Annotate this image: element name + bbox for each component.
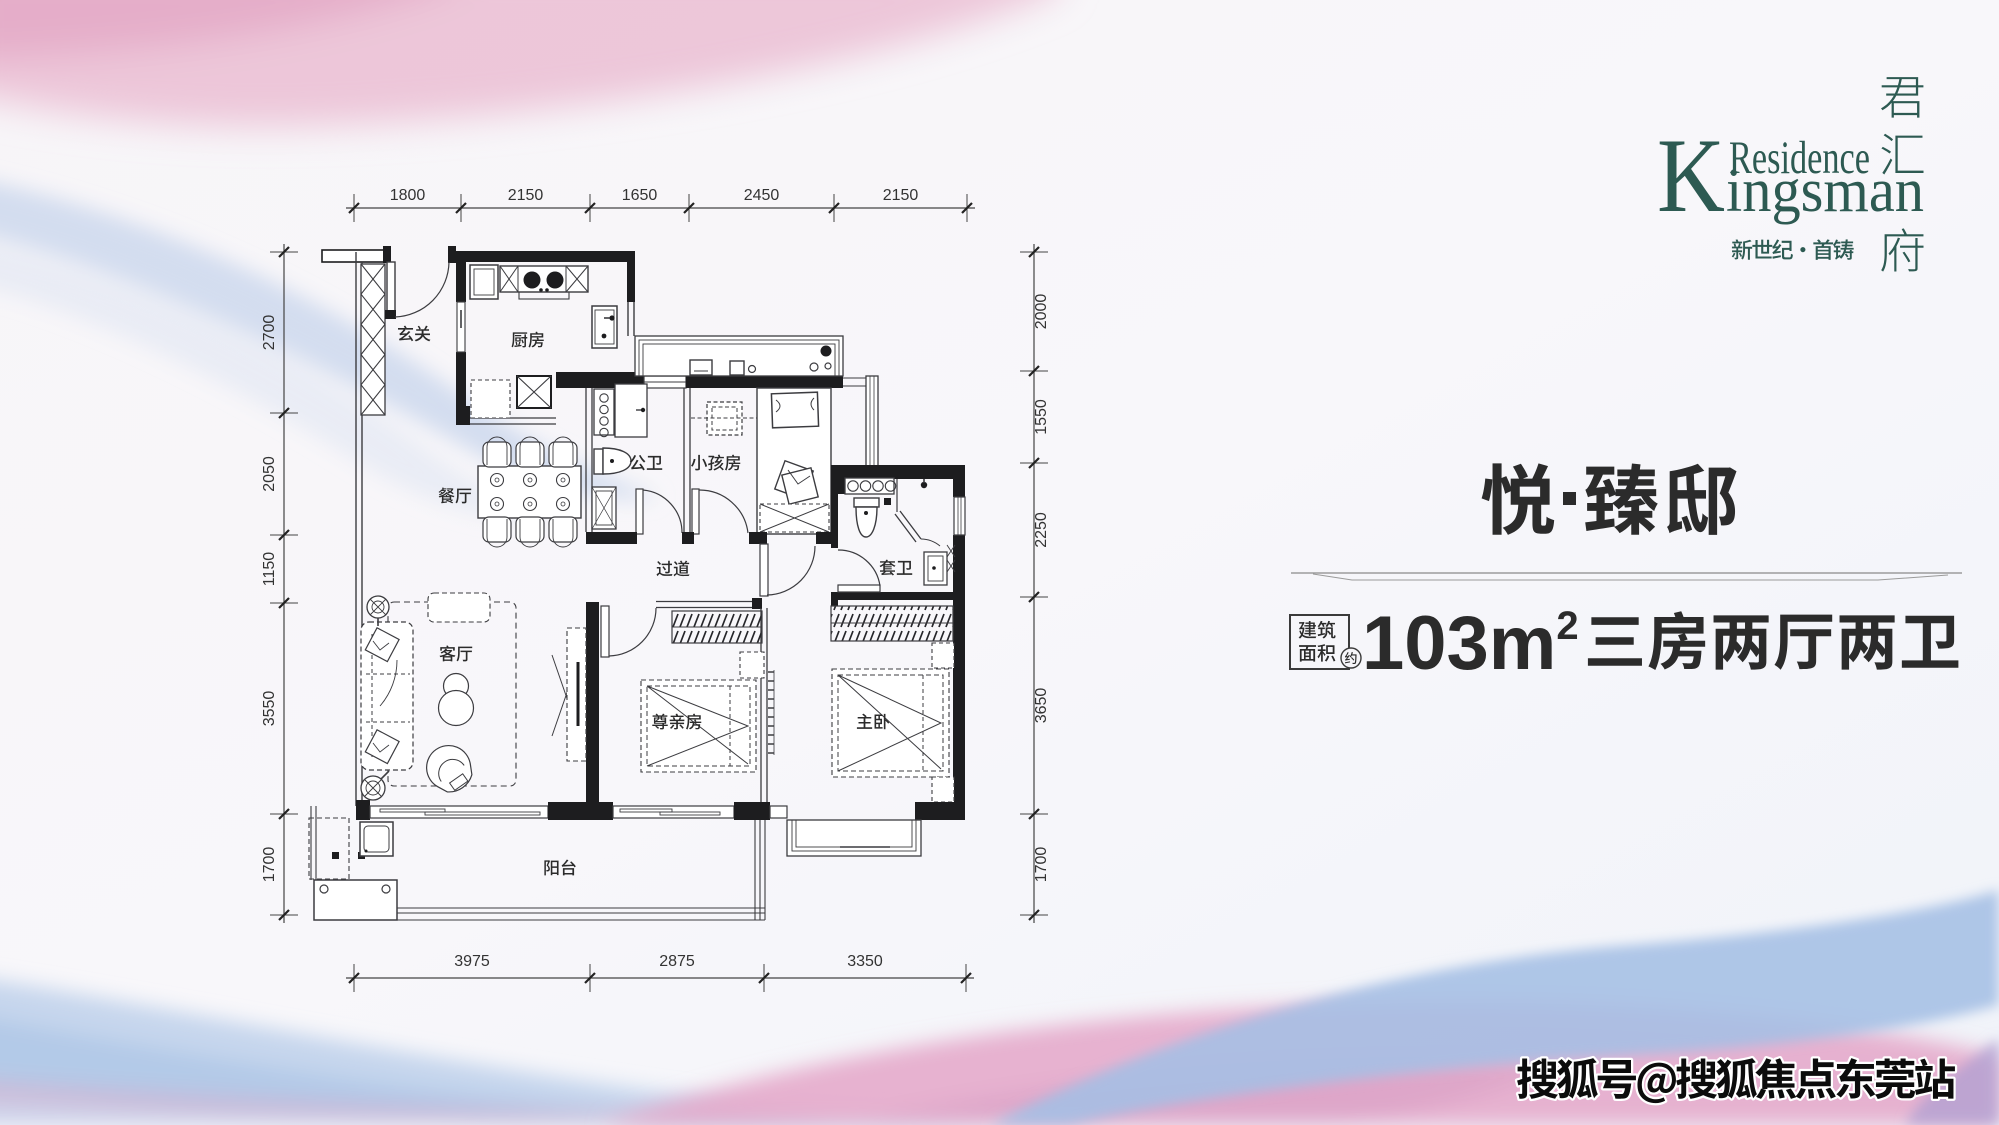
svg-text:1700: 1700 bbox=[1033, 847, 1050, 883]
svg-text:1150: 1150 bbox=[261, 552, 278, 587]
svg-text:3350: 3350 bbox=[847, 953, 883, 970]
svg-text:3975: 3975 bbox=[454, 953, 490, 970]
svg-text:2150: 2150 bbox=[883, 187, 919, 204]
svg-text:103m2: 103m2 bbox=[1362, 601, 1579, 686]
svg-text:2150: 2150 bbox=[508, 187, 544, 204]
svg-text:1700: 1700 bbox=[261, 847, 278, 883]
svg-text:ingsman: ingsman bbox=[1726, 157, 1924, 225]
svg-text:1800: 1800 bbox=[390, 187, 426, 204]
svg-text:1650: 1650 bbox=[622, 187, 658, 204]
svg-text:2250: 2250 bbox=[1033, 512, 1050, 548]
svg-text:2875: 2875 bbox=[659, 953, 695, 970]
svg-text:2000: 2000 bbox=[1033, 294, 1050, 330]
svg-text:3650: 3650 bbox=[1033, 688, 1050, 724]
svg-text:2700: 2700 bbox=[261, 315, 278, 351]
svg-text:2450: 2450 bbox=[744, 187, 780, 204]
svg-text:2050: 2050 bbox=[261, 456, 278, 492]
svg-text:K: K bbox=[1657, 117, 1725, 234]
svg-text:3550: 3550 bbox=[261, 691, 278, 727]
svg-text:1550: 1550 bbox=[1033, 399, 1050, 435]
